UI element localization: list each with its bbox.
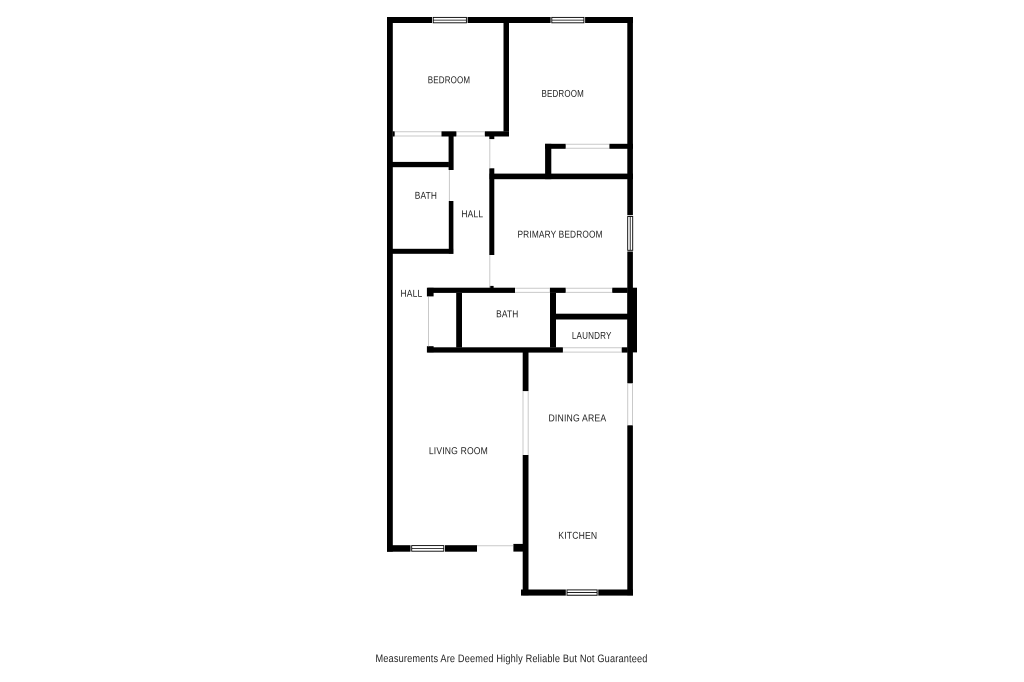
svg-text:HALL: HALL bbox=[400, 288, 422, 299]
svg-text:PRIMARY BEDROOM: PRIMARY BEDROOM bbox=[517, 229, 602, 240]
svg-text:BEDROOM: BEDROOM bbox=[541, 88, 583, 99]
svg-text:BEDROOM: BEDROOM bbox=[428, 74, 470, 85]
svg-text:BATH: BATH bbox=[496, 309, 518, 320]
svg-text:BATH: BATH bbox=[415, 190, 437, 201]
svg-text:KITCHEN: KITCHEN bbox=[558, 530, 597, 541]
svg-text:LAUNDRY: LAUNDRY bbox=[572, 330, 612, 341]
svg-text:HALL: HALL bbox=[461, 209, 483, 220]
svg-text:Measurements Are Deemed Highly: Measurements Are Deemed Highly Reliable … bbox=[375, 653, 647, 665]
svg-text:DINING AREA: DINING AREA bbox=[548, 413, 606, 424]
svg-text:LIVING ROOM: LIVING ROOM bbox=[429, 446, 488, 457]
